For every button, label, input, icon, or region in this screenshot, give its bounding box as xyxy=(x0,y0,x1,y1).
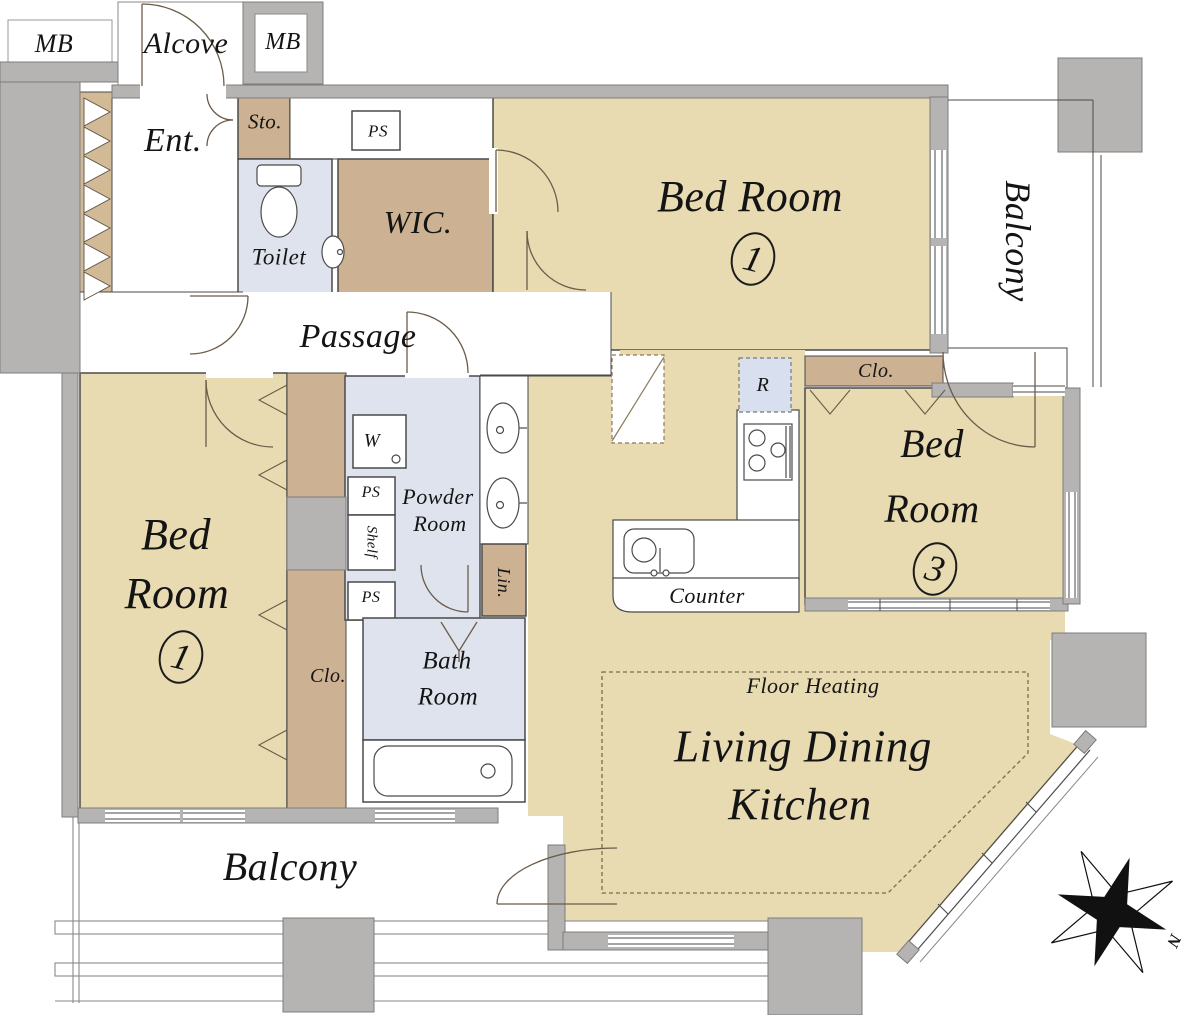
label-balcony-bottom: Balcony xyxy=(223,847,358,887)
bedroom2-closet-upper xyxy=(287,373,346,497)
bedroom2-number: 1 xyxy=(153,625,209,688)
wall-balcony-right-bottom xyxy=(932,383,1013,397)
pillar-bottom-right xyxy=(768,918,862,1015)
wall-left-pillar xyxy=(0,82,80,373)
pillar-mid-right xyxy=(1052,633,1146,727)
wall-mb-shelf xyxy=(0,62,118,82)
toilet-bowl xyxy=(261,187,297,237)
label-bedroom2-line2: Room xyxy=(125,572,230,616)
bedroom1-number: 1 xyxy=(725,227,781,290)
label-floor-heating: Floor Heating xyxy=(747,675,880,697)
label-mb-right: MB xyxy=(265,30,301,54)
toilet-tank xyxy=(257,165,301,186)
label-balcony-right: Balcony xyxy=(1000,180,1036,301)
washer-valve xyxy=(392,455,400,463)
pillar-top-right xyxy=(1058,58,1142,152)
label-linen: Lin. xyxy=(495,568,513,599)
label-shelf: Shelf xyxy=(364,526,379,559)
label-bedroom3-line1: Bed xyxy=(900,424,964,464)
label-ps-mid-lower: PS xyxy=(362,590,381,606)
wall-top xyxy=(112,85,948,98)
label-passage: Passage xyxy=(300,320,417,354)
label-powder-line2: Room xyxy=(413,513,466,535)
label-bedroom3-line2: Room xyxy=(884,489,979,529)
label-wic: WIC. xyxy=(384,206,453,238)
label-washer: W xyxy=(364,432,380,451)
ldk-floor-east xyxy=(805,604,1086,952)
ldk-floor-west xyxy=(528,376,620,816)
label-bath-line1: Bath xyxy=(422,649,471,674)
label-entrance: Ent. xyxy=(144,124,202,158)
label-ps-top: PS xyxy=(368,123,388,140)
bedroom3-number-badge: 3 xyxy=(913,542,957,596)
label-mb-left: MB xyxy=(35,31,74,57)
bedroom3-number: 3 xyxy=(907,537,963,600)
label-ps-mid-upper: PS xyxy=(362,485,381,501)
label-closet-bedroom2: Clo. xyxy=(310,666,346,686)
label-closet-bedroom3: Clo. xyxy=(858,361,894,381)
bedroom2-closet-main xyxy=(287,570,346,815)
label-bath-line2: Room xyxy=(418,685,478,710)
bathtub-drain xyxy=(481,764,495,778)
label-alcove: Alcove xyxy=(144,29,229,59)
label-bedroom2-line1: Bed xyxy=(141,513,211,557)
label-ldk-line1: Living Dining xyxy=(674,725,932,770)
pillar-closet-strip xyxy=(287,497,346,570)
label-refrigerator: R xyxy=(757,375,770,395)
floor-plan: MB Alcove MB Ent. Sto. PS Toilet WIC. Be… xyxy=(0,0,1200,1015)
bedroom1-number-badge: 1 xyxy=(731,232,775,286)
label-powder-line1: Powder xyxy=(402,486,473,508)
pillar-bottom-left xyxy=(283,918,374,1012)
label-storage: Sto. xyxy=(248,112,282,133)
label-counter: Counter xyxy=(669,585,745,607)
label-ldk-line2: Kitchen xyxy=(728,783,871,828)
label-bedroom1: Bed Room xyxy=(657,175,843,219)
wall-left xyxy=(62,373,78,817)
wall-balcony-ldk xyxy=(548,845,565,950)
bath-room-floor xyxy=(363,618,525,740)
bedroom2-number-badge: 1 xyxy=(159,630,203,684)
label-toilet: Toilet xyxy=(252,246,307,269)
